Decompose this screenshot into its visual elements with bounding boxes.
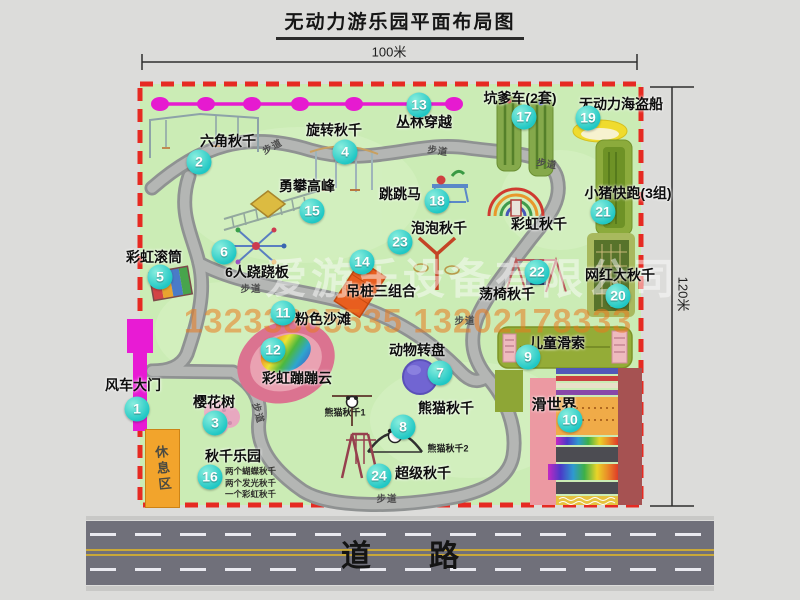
big-swing-icon (587, 233, 635, 317)
dimension-label-right: 120米 (675, 277, 694, 312)
page-title-text: 无动力游乐园平面布局图 (276, 7, 523, 40)
page-title: 无动力游乐园平面布局图 (0, 7, 800, 40)
rainbow-roller-icon (149, 266, 192, 300)
dimension-label-top: 100米 (372, 42, 407, 61)
road-curb-bottom (86, 586, 714, 591)
road-strip: 道路 (86, 521, 714, 585)
pirate-ship-icon (573, 120, 627, 142)
kids-zipline-icon (498, 327, 632, 368)
rest-area: 休息区 (145, 429, 180, 508)
road-label: 道路 (86, 521, 714, 585)
road-curb-top (86, 516, 714, 520)
screenshot-root: 无动力游乐园平面布局图 100米 120米 (0, 0, 800, 600)
piggy-run-icon (596, 140, 632, 235)
rest-area-label: 休息区 (151, 444, 175, 494)
animal-turntable-icon (403, 360, 437, 394)
